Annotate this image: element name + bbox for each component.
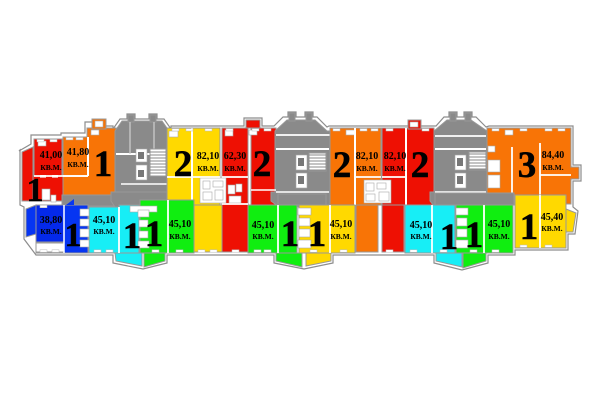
svg-text:КВ.М.: КВ.М. bbox=[410, 232, 431, 241]
svg-text:45,10: 45,10 bbox=[330, 219, 353, 230]
svg-text:КВ.М.: КВ.М. bbox=[356, 164, 377, 173]
svg-text:1: 1 bbox=[465, 215, 484, 256]
svg-text:КВ.М.: КВ.М. bbox=[224, 164, 245, 173]
svg-text:2: 2 bbox=[253, 144, 272, 185]
svg-text:КВ.М.: КВ.М. bbox=[541, 224, 562, 233]
svg-text:82,10: 82,10 bbox=[197, 151, 220, 162]
svg-text:38,80: 38,80 bbox=[40, 215, 63, 226]
svg-text:КВ.М.: КВ.М. bbox=[67, 160, 88, 169]
svg-text:41,80: 41,80 bbox=[67, 147, 90, 158]
svg-text:2: 2 bbox=[411, 145, 430, 186]
svg-text:КВ.М.: КВ.М. bbox=[40, 227, 61, 236]
svg-text:82,10: 82,10 bbox=[384, 151, 407, 162]
svg-text:2: 2 bbox=[174, 144, 193, 185]
svg-text:КВ.М.: КВ.М. bbox=[252, 232, 273, 241]
svg-text:2: 2 bbox=[333, 145, 352, 186]
svg-text:45,10: 45,10 bbox=[252, 220, 275, 231]
svg-text:45,10: 45,10 bbox=[169, 219, 192, 230]
svg-text:3: 3 bbox=[518, 145, 537, 186]
svg-text:1: 1 bbox=[65, 217, 82, 254]
svg-text:КВ.М.: КВ.М. bbox=[93, 227, 114, 236]
svg-text:1: 1 bbox=[123, 216, 142, 257]
svg-text:КВ.М.: КВ.М. bbox=[197, 164, 218, 173]
svg-text:45,10: 45,10 bbox=[410, 220, 433, 231]
svg-text:1: 1 bbox=[308, 214, 327, 255]
svg-text:КВ.М.: КВ.М. bbox=[542, 163, 563, 172]
svg-text:1: 1 bbox=[440, 217, 459, 258]
svg-text:КВ.М.: КВ.М. bbox=[384, 164, 405, 173]
svg-text:82,10: 82,10 bbox=[356, 151, 379, 162]
svg-text:1: 1 bbox=[281, 214, 300, 255]
svg-text:1: 1 bbox=[145, 214, 164, 255]
svg-text:1: 1 bbox=[27, 172, 44, 209]
svg-text:КВ.М.: КВ.М. bbox=[169, 232, 190, 241]
svg-text:КВ.М.: КВ.М. bbox=[488, 232, 509, 241]
svg-text:КВ.М.: КВ.М. bbox=[330, 232, 351, 241]
svg-text:84,40: 84,40 bbox=[542, 150, 565, 161]
svg-text:1: 1 bbox=[94, 144, 113, 185]
svg-text:45,40: 45,40 bbox=[541, 212, 564, 223]
svg-text:41,00: 41,00 bbox=[40, 150, 63, 161]
svg-text:62,30: 62,30 bbox=[224, 151, 247, 162]
svg-text:1: 1 bbox=[520, 207, 539, 248]
svg-text:КВ.М.: КВ.М. bbox=[40, 163, 61, 172]
svg-text:45,10: 45,10 bbox=[93, 215, 116, 226]
svg-text:45,10: 45,10 bbox=[488, 219, 511, 230]
